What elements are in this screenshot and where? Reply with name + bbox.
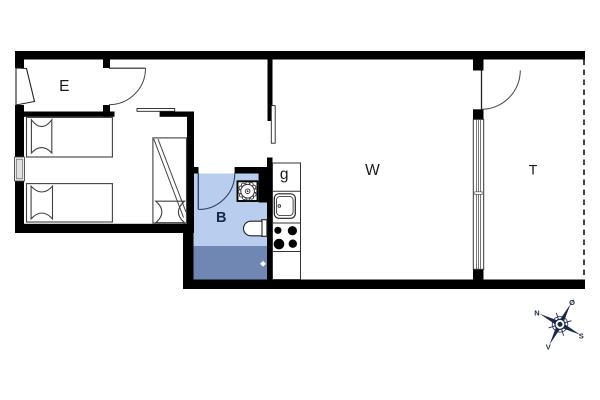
- svg-text:W: W: [365, 162, 380, 179]
- svg-text:g: g: [280, 166, 289, 183]
- svg-text:B: B: [216, 210, 226, 226]
- svg-text:S: S: [579, 331, 584, 340]
- svg-text:E: E: [59, 78, 69, 95]
- svg-text:T: T: [529, 161, 538, 177]
- svg-text:Ø: Ø: [569, 298, 575, 307]
- svg-text:N: N: [534, 308, 539, 317]
- svg-text:V: V: [546, 342, 551, 351]
